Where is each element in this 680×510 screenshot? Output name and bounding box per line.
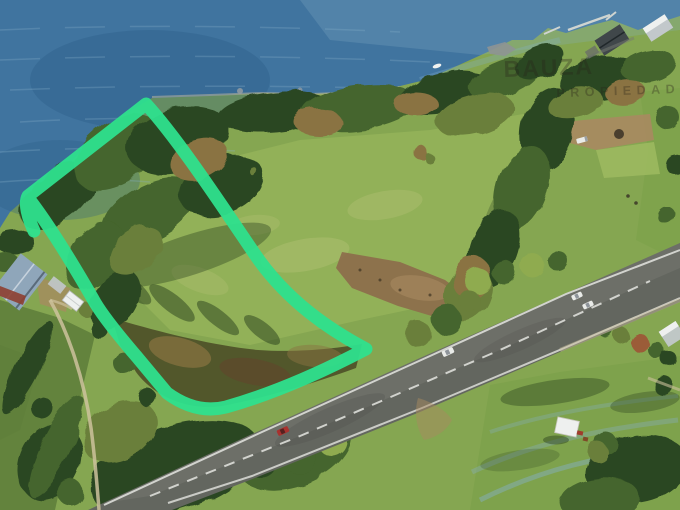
watermark-line-1: BAUZA bbox=[503, 53, 594, 82]
animal-dot bbox=[634, 201, 638, 205]
dirt-mound bbox=[614, 129, 624, 139]
aerial-photo-canvas: BAUZA PROPIEDADES bbox=[0, 0, 680, 510]
aerial-photo: BAUZA PROPIEDADES bbox=[0, 0, 680, 510]
animal-dot bbox=[626, 194, 630, 198]
red-shrub bbox=[631, 334, 649, 352]
